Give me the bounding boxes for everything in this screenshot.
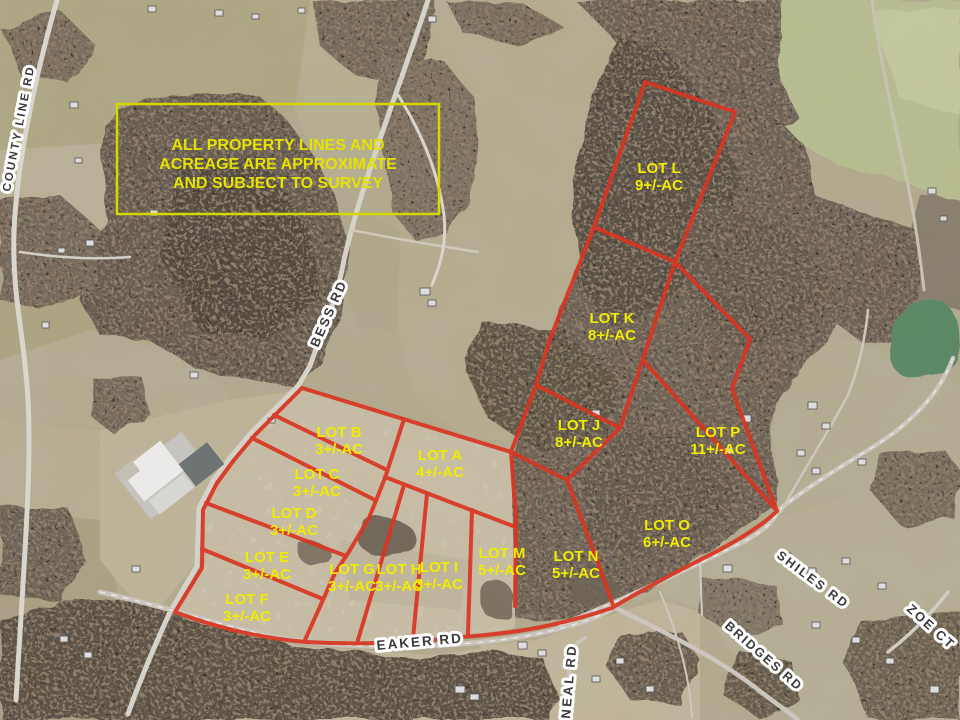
svg-text:11+/-AC: 11+/-AC (690, 441, 746, 458)
svg-text:3+/-AC: 3+/-AC (223, 608, 271, 625)
svg-text:ACREAGE ARE APPROXIMATE: ACREAGE ARE APPROXIMATE (159, 156, 397, 173)
svg-text:LOT E: LOT E (245, 549, 289, 566)
svg-text:ALL PROPERTY LINES AND: ALL PROPERTY LINES AND (171, 137, 384, 154)
svg-text:LOT F: LOT F (225, 591, 268, 608)
svg-text:3+/-AC: 3+/-AC (293, 483, 341, 500)
svg-text:4+/-AC: 4+/-AC (416, 464, 464, 481)
svg-text:3+/-AC: 3+/-AC (315, 441, 363, 458)
svg-text:3+/-AC: 3+/-AC (243, 566, 291, 583)
svg-text:LOT O: LOT O (644, 517, 690, 534)
svg-text:5+/-AC: 5+/-AC (552, 565, 600, 582)
svg-text:LOT N: LOT N (554, 548, 599, 565)
svg-text:9+/-AC: 9+/-AC (635, 177, 683, 194)
svg-text:8+/-AC: 8+/-AC (588, 327, 636, 344)
svg-text:LOT L: LOT L (637, 160, 680, 177)
svg-text:3+/-AC: 3+/-AC (328, 578, 376, 595)
svg-text:LOT P: LOT P (696, 424, 740, 441)
svg-text:3+/-AC: 3+/-AC (270, 522, 318, 539)
svg-text:LOT G: LOT G (329, 561, 375, 578)
svg-text:LOT A: LOT A (418, 447, 463, 464)
svg-text:3+/-AC: 3+/-AC (415, 576, 463, 593)
svg-text:8+/-AC: 8+/-AC (555, 434, 603, 451)
svg-text:LOT I: LOT I (420, 559, 458, 576)
svg-text:AND SUBJECT TO SURVEY: AND SUBJECT TO SURVEY (173, 175, 383, 192)
svg-text:LOT C: LOT C (295, 466, 340, 483)
svg-text:6+/-AC: 6+/-AC (643, 534, 691, 551)
svg-text:LOT K: LOT K (590, 310, 635, 327)
svg-text:LOT J: LOT J (558, 417, 601, 434)
svg-text:LOT B: LOT B (317, 424, 362, 441)
svg-text:LOT D: LOT D (272, 505, 317, 522)
svg-text:5+/-AC: 5+/-AC (478, 562, 526, 579)
svg-text:LOT M: LOT M (479, 545, 526, 562)
